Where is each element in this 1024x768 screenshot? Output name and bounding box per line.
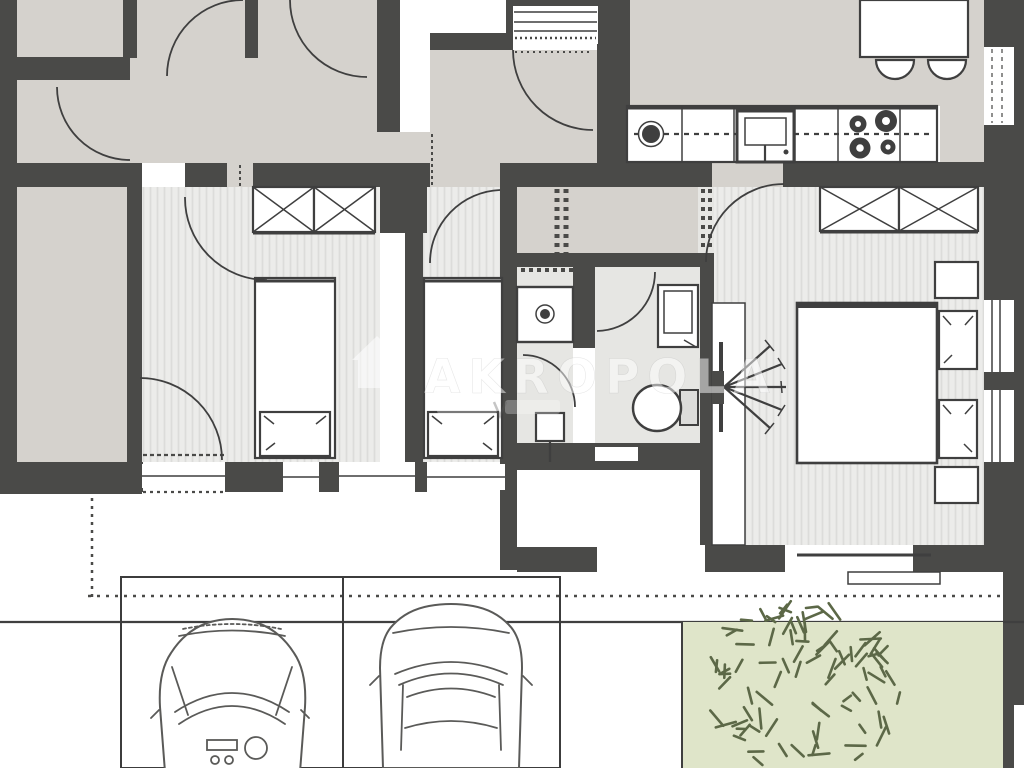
plant-dash [860, 639, 880, 640]
wall [377, 0, 400, 132]
corner-basin-icon [658, 285, 698, 347]
pillow [428, 412, 498, 456]
wall [245, 0, 258, 58]
plant-dash [851, 647, 852, 661]
plant-dash [806, 607, 817, 608]
wall [0, 462, 142, 494]
wall [783, 162, 984, 187]
plant-dash [736, 644, 753, 645]
wall [405, 233, 423, 462]
wall [984, 125, 1024, 187]
hall-floor [377, 132, 430, 163]
wall [1003, 705, 1014, 768]
stair-landing [400, 0, 430, 132]
closet [712, 303, 745, 545]
wall [506, 0, 514, 44]
wall [225, 462, 283, 492]
wall [1014, 300, 1024, 372]
dining-table [860, 0, 968, 57]
wall [984, 187, 1024, 300]
wall [505, 462, 517, 492]
nightstand [935, 467, 978, 503]
lawn [682, 622, 1003, 768]
hall-floor [17, 0, 377, 163]
wall [913, 545, 1024, 572]
doorway [712, 163, 783, 187]
shower-icon [517, 287, 573, 342]
nightstand [935, 262, 978, 298]
terrace-step [848, 572, 940, 584]
parking [121, 577, 560, 768]
plant-dash [760, 609, 765, 619]
living-floor [940, 106, 984, 162]
corridor-floor [510, 187, 700, 253]
wall [705, 545, 785, 572]
wall [380, 187, 427, 233]
wall [984, 0, 1024, 47]
wall [517, 547, 597, 572]
window [984, 47, 1014, 125]
wall [127, 187, 142, 462]
wall [0, 163, 142, 187]
single-bed [255, 278, 335, 458]
wall [573, 253, 595, 348]
wall [127, 462, 143, 492]
garden-notch [1014, 705, 1024, 768]
wardrobe [820, 187, 978, 232]
car [370, 604, 532, 768]
wall [415, 462, 427, 492]
wall [123, 0, 137, 58]
plant-dash [724, 665, 725, 678]
pillow [939, 400, 977, 458]
wall [253, 163, 430, 187]
pillow [260, 412, 330, 456]
car [151, 619, 309, 768]
plant-dash [796, 641, 808, 642]
staircase [513, 0, 598, 44]
kitchen-counter [627, 106, 937, 162]
wall [630, 162, 712, 187]
window [984, 390, 1014, 462]
wall [500, 253, 712, 267]
doorway [430, 163, 500, 187]
wall [1014, 47, 1024, 125]
pillow [939, 311, 977, 369]
wall [597, 0, 630, 187]
entry-floor [430, 50, 597, 163]
oven-icon [737, 111, 794, 162]
wall [1014, 390, 1024, 462]
wall [1003, 572, 1024, 705]
wall [984, 372, 1024, 390]
wardrobe [253, 187, 375, 233]
plant-dash [805, 612, 823, 619]
sink-icon [639, 122, 664, 147]
window [984, 300, 1014, 372]
plant-dash [741, 620, 752, 621]
wall [0, 0, 17, 494]
wall [17, 57, 130, 80]
wall [430, 33, 513, 50]
watermark-text: AKROPOLA [424, 350, 778, 405]
wall [319, 462, 339, 492]
window [595, 447, 638, 461]
left-room-floor [17, 187, 127, 462]
floor-plan: AKROPOLA [0, 0, 1024, 768]
wall [500, 163, 597, 187]
garden [682, 601, 1024, 768]
wall [185, 163, 227, 187]
